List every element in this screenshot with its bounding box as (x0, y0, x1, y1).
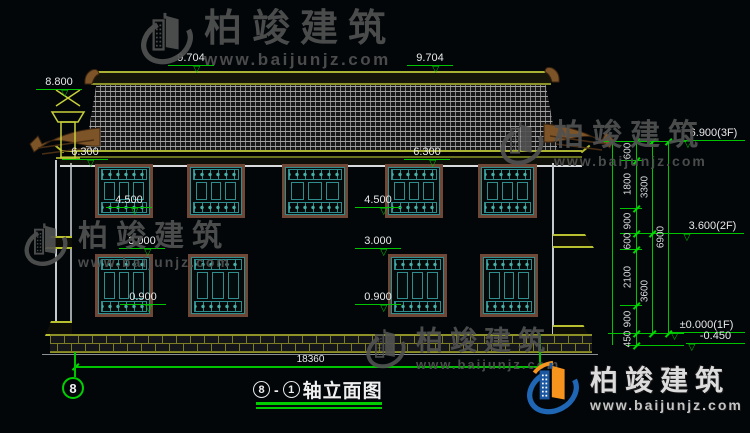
vdim-2100: 2100 (623, 266, 634, 288)
brand-logo-icon (498, 120, 546, 168)
dim-connector (620, 208, 642, 209)
vdim-3600: 3600 (640, 280, 651, 302)
level-marker-3000: 3.000▽ (355, 235, 401, 249)
watermark-name: 柏竣建筑 (416, 328, 560, 355)
level-marker-4500: 4.500▽ (106, 194, 152, 208)
window-1f-3 (388, 254, 447, 317)
level-marker-9704: 9.704▽ (407, 52, 453, 66)
window-2f-1 (95, 164, 153, 218)
level-marker-minus-0450: -0.450▽ (686, 330, 745, 344)
watermark-url: www.baijunjz.com (590, 398, 743, 412)
watermark-brand-colored: 柏竣建筑 www.baijunjz.com (524, 360, 743, 418)
axis-line-8 (74, 352, 76, 377)
ridge-ornament-icon (82, 66, 102, 86)
level-marker-0900: 0.900▽ (120, 291, 166, 305)
vdim-600: 600 (623, 233, 634, 250)
brand-logo-icon (138, 10, 196, 68)
watermark: 柏竣建筑 www.baijunjz.com (138, 10, 396, 68)
level-marker-4500: 4.500▽ (355, 194, 401, 208)
dim-chain-3 (668, 141, 669, 333)
vdim-450: 450 (623, 331, 634, 348)
brand-logo-color-icon (524, 360, 582, 418)
cad-elevation-drawing: 18360 8 8 - 1 轴立面图 8.800▽ 9.704▽ 9.704▽ … (0, 0, 750, 433)
brand-logo-icon (364, 327, 408, 371)
vdim-6900: 6900 (656, 226, 667, 248)
dim-chain-1 (636, 141, 637, 345)
vdim-3300: 3300 (640, 176, 651, 198)
roof-tile-hatch (85, 75, 558, 152)
roof-ridge (91, 71, 551, 85)
dim-extension-line (612, 141, 613, 345)
window-2f-4 (385, 164, 443, 218)
dim-connector (620, 305, 642, 306)
watermark-name: 柏竣建筑 (590, 367, 743, 395)
watermark: 柏竣建筑 www.baijunjz.com (22, 221, 231, 269)
title-underline-thick (256, 402, 382, 405)
axis-ref-end-circle: 1 (283, 381, 300, 398)
ridge-ornament-icon (540, 64, 562, 84)
axis-ref-dash: - (274, 382, 279, 398)
level-marker-3600-2f: 3.600(2F)▽ (681, 220, 744, 234)
vdim-900: 900 (623, 213, 634, 230)
wall-edge-right (552, 163, 554, 337)
watermark-url: www.baijunjz.com (554, 154, 707, 168)
watermark-url: www.baijunjz.com (78, 255, 231, 269)
level-marker-6300: 6.300▽ (62, 146, 108, 160)
watermark-name: 柏竣建筑 (554, 121, 707, 151)
level-marker-8800: 8.800▽ (36, 76, 82, 90)
axis-ref-start-circle: 8 (253, 381, 270, 398)
window-2f-3 (282, 164, 348, 218)
axis-bubble-8: 8 (62, 377, 84, 399)
title-underline-thin (256, 407, 382, 409)
watermark: 柏竣建筑 www.baijunjz.com (498, 120, 707, 168)
brand-logo-icon (22, 221, 70, 269)
watermark-name: 柏竣建筑 (78, 222, 231, 252)
watermark-url: www.baijunjz.com (204, 51, 396, 68)
window-1f-4 (480, 254, 538, 317)
dim-connector (608, 333, 684, 334)
floor-ledge (553, 234, 594, 248)
watermark-name: 柏竣建筑 (204, 10, 396, 48)
drawing-title-block: 8 - 1 轴立面图 (253, 376, 383, 403)
dim-chain-2 (652, 141, 653, 333)
level-marker-0900: 0.900▽ (355, 291, 401, 305)
drawing-title: 轴立面图 (303, 376, 383, 403)
window-2f-5 (478, 164, 537, 218)
level-marker-6300: 6.300▽ (404, 146, 450, 160)
window-2f-2 (187, 164, 245, 218)
vdim-900: 900 (623, 311, 634, 328)
dimension-total-width: 18360 (283, 354, 338, 365)
vdim-1800: 1800 (623, 173, 634, 195)
